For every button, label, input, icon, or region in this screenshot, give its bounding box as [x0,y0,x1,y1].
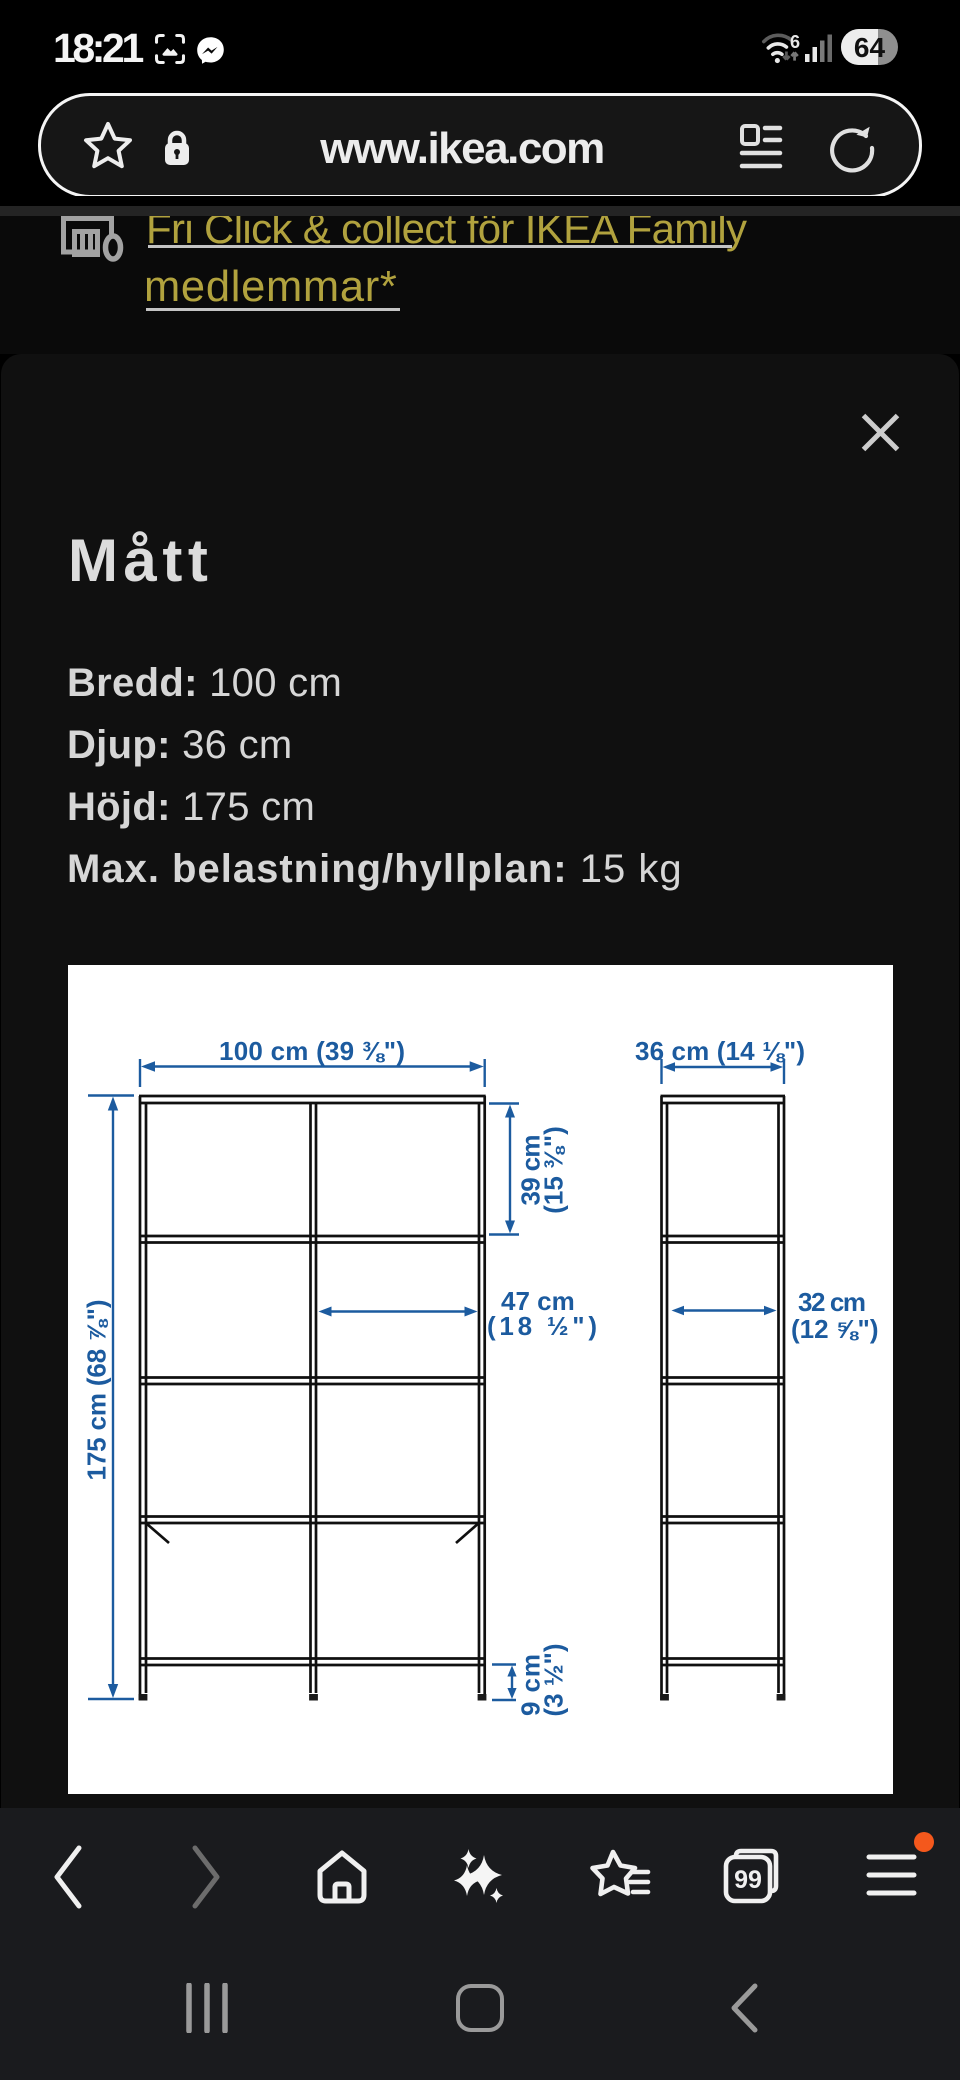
svg-text:(15 ⅜"): (15 ⅜") [539,1126,569,1213]
svg-text:6: 6 [790,32,800,52]
svg-text:36 cm (14 ⅛"): 36 cm (14 ⅛") [635,1036,805,1066]
svg-text:99: 99 [734,1866,762,1894]
svg-text:100 cm (39 ⅜"): 100 cm (39 ⅜") [219,1036,405,1066]
svg-text:(18 ½"): (18 ½") [487,1311,597,1341]
svg-text:175 cm (68 ⅞"): 175 cm (68 ⅞") [82,1300,112,1481]
svg-text:(3 ½"): (3 ½") [539,1643,569,1716]
svg-text:32 cm: 32 cm [798,1287,866,1317]
svg-text:(12 ⅝"): (12 ⅝") [791,1314,878,1344]
